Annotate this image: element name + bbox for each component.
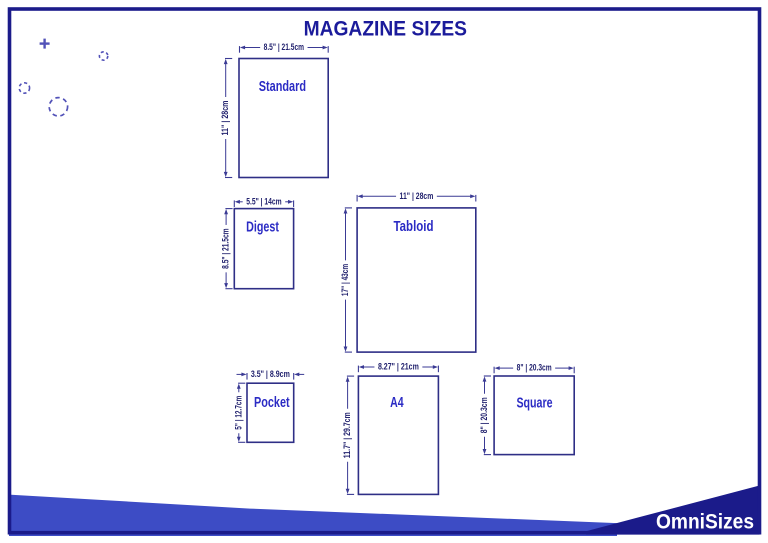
svg-text:8" | 20.3cm: 8" | 20.3cm <box>479 397 489 433</box>
svg-text:Square: Square <box>516 396 552 412</box>
svg-text:8.27" | 21cm: 8.27" | 21cm <box>378 362 419 372</box>
svg-text:A4: A4 <box>390 395 404 411</box>
svg-text:5.5" | 14cm: 5.5" | 14cm <box>246 196 282 206</box>
svg-text:11.7" | 29.7cm: 11.7" | 29.7cm <box>342 412 352 458</box>
svg-text:17" | 43cm: 17" | 43cm <box>340 264 350 296</box>
svg-text:8" | 20.3cm: 8" | 20.3cm <box>517 363 552 373</box>
svg-text:Standard: Standard <box>259 79 306 95</box>
svg-text:MAGAZINE SIZES: MAGAZINE SIZES <box>304 17 467 41</box>
svg-text:8.5" | 21.5cm: 8.5" | 21.5cm <box>221 228 231 269</box>
svg-text:5" | 12.7cm: 5" | 12.7cm <box>233 396 243 430</box>
svg-text:11" | 28cm: 11" | 28cm <box>400 191 434 201</box>
svg-text:Tabloid: Tabloid <box>394 219 434 235</box>
svg-text:3.5" | 8.9cm: 3.5" | 8.9cm <box>251 369 290 379</box>
svg-text:11" | 28cm: 11" | 28cm <box>220 100 230 135</box>
svg-text:OmniSizes: OmniSizes <box>656 511 754 534</box>
svg-text:8.5" | 21.5cm: 8.5" | 21.5cm <box>264 42 305 52</box>
svg-text:Digest: Digest <box>246 220 279 236</box>
svg-text:Pocket: Pocket <box>254 395 290 411</box>
